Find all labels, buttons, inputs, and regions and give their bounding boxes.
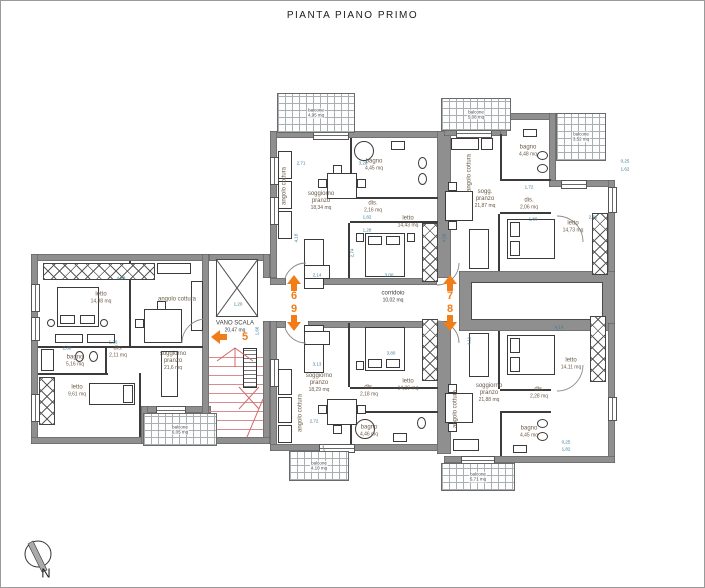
bidet <box>418 173 427 185</box>
room-area: 2,28 mq <box>530 394 548 400</box>
entrance-number-8: 8 <box>447 303 453 315</box>
room-label: soggiorno pranzo18,29 mq <box>306 373 332 393</box>
pillow <box>368 359 382 368</box>
pillow <box>386 359 400 368</box>
room-name: bagno <box>360 424 378 431</box>
room-name: letto <box>398 378 419 385</box>
dimension-label: 0,25 <box>621 159 630 164</box>
partition <box>500 134 502 181</box>
room-area: 2,16 mq <box>364 208 382 214</box>
room-label: letto14,43 mq <box>398 215 419 228</box>
balcony: balcone 4,95 mq <box>277 93 355 133</box>
balcony-label: balcone 6,05 mq <box>171 424 189 435</box>
chair <box>357 405 366 414</box>
wardrobe-hatch <box>39 377 55 425</box>
room-area: 2,11 mq <box>109 353 127 359</box>
room-area: 21,6 mq <box>160 365 186 371</box>
partition <box>139 373 141 437</box>
room-label: letto14,11 mq <box>561 357 581 370</box>
dimension-label: 2,74 <box>350 249 355 258</box>
compass-circle <box>25 541 51 567</box>
dining-table <box>144 309 182 343</box>
sofa <box>469 229 489 269</box>
room-label: dis.2,16 mq <box>364 200 382 213</box>
room-area: 18,34 mq <box>308 205 334 211</box>
room-name: soggiorno pranzo <box>160 351 186 365</box>
room-name: angolo cottura <box>466 154 473 192</box>
partition <box>348 323 350 387</box>
entrance-arrow-7 <box>443 275 457 291</box>
dining-table <box>327 399 357 425</box>
pillow <box>510 338 520 353</box>
sofa <box>469 333 489 377</box>
room-label: bagno4,45 mq <box>365 158 383 171</box>
elevator <box>216 259 258 317</box>
compass-north-label: N <box>41 566 50 581</box>
room-label: bagno4,46 mq <box>360 424 378 437</box>
room-area: 2,06 mq <box>520 205 538 211</box>
room-name: letto <box>91 291 112 298</box>
chair <box>333 425 342 434</box>
balcony-label: balcone 5,71 mq <box>469 472 487 483</box>
room-name: angolo cottura <box>452 390 459 428</box>
room-label: letto14,73 mq <box>563 220 584 233</box>
room-name: letto <box>561 357 581 364</box>
chair <box>448 221 457 230</box>
partition <box>38 373 108 375</box>
chair <box>333 165 342 174</box>
dimension-label: 1,20 <box>234 302 243 307</box>
wall <box>608 323 615 463</box>
room-label: bagno4,45 mq <box>520 425 538 438</box>
toilet <box>418 157 427 169</box>
room-name: dis. <box>360 384 378 391</box>
dimension-label: 0,25 <box>562 440 571 445</box>
kitchen-counter <box>278 397 292 423</box>
partition <box>500 212 551 214</box>
room-name: letto <box>68 384 86 391</box>
toilet <box>537 151 548 160</box>
dimension-label: 2,14 <box>313 273 322 278</box>
sink <box>513 445 527 453</box>
bidet <box>537 432 548 441</box>
floor-plan-canvas: PIANTA PIANO PRIMO <box>0 0 705 588</box>
dimension-label: 1,26 <box>109 340 118 345</box>
wardrobe-hatch <box>590 316 606 382</box>
room-name: dis. <box>364 200 382 207</box>
entrance-number-6: 6 <box>291 290 297 302</box>
dimension-label: 3,00 <box>385 273 394 278</box>
partition <box>498 331 500 389</box>
dimension-label: 1,62 <box>621 167 630 172</box>
room-name: angolo cottura <box>158 296 196 303</box>
room-label: bagno4,48 mq <box>519 144 537 157</box>
room-label: soggiorno pranzo21,6 mq <box>160 351 186 371</box>
bidet <box>537 164 548 173</box>
partition <box>350 197 438 199</box>
kitchen-counter <box>481 138 493 150</box>
wardrobe-hatch <box>422 223 438 282</box>
dimension-label: 4,18 <box>294 234 299 243</box>
kitchen-counter <box>278 369 292 395</box>
room-label: angolo cottura <box>452 390 459 428</box>
room-label: letto14,29 mq <box>398 378 419 391</box>
room-name: letto <box>563 220 584 227</box>
dining-table <box>445 191 473 221</box>
room-area: 18,29 mq <box>306 387 332 393</box>
desk <box>55 334 83 343</box>
chair <box>318 179 327 188</box>
dimension-label: 3,28 <box>359 161 368 166</box>
room-label: dis.2,11 mq <box>109 345 127 358</box>
dimension-label: 4,28 <box>117 276 126 281</box>
room-area: 21,88 mq <box>476 397 502 403</box>
dimension-label: 1,66 <box>255 327 260 336</box>
dimension-label: 2,31 <box>589 215 598 220</box>
room-name: letto <box>398 215 419 222</box>
room-area: 10,02 mq <box>381 298 404 304</box>
pillow <box>386 236 400 245</box>
room-label: soggiorno pranzo21,88 mq <box>476 383 502 403</box>
room-name: dis. <box>520 197 538 204</box>
room-name: soggiorno pranzo <box>476 383 502 397</box>
room-area: 4,45 mq <box>365 166 383 172</box>
wardrobe-hatch <box>592 213 608 275</box>
room-label: letto9,61 mq <box>68 384 86 397</box>
room-area: 4,48 mq <box>519 152 537 158</box>
wall <box>549 113 556 187</box>
room-label: angolo cottura <box>281 167 288 205</box>
kitchen-counter <box>157 263 191 274</box>
nightstand <box>356 233 364 242</box>
room-label: angolo cottura <box>158 296 196 303</box>
room-label: letto14,38 mq <box>91 291 112 304</box>
room-area: 14,73 mq <box>563 228 584 234</box>
entrance-arrow-8 <box>443 315 457 331</box>
dimension-label: 3,80 <box>387 351 396 356</box>
dimension-label: 1,82 <box>562 447 571 452</box>
wall <box>308 278 437 285</box>
partition <box>500 411 551 413</box>
room-area: 2,18 mq <box>360 392 378 398</box>
room-area: 9,61 mq <box>68 392 86 398</box>
room-area: 14,38 mq <box>91 299 112 305</box>
dimension-label: 2,88 <box>63 346 72 351</box>
room-label: angolo cottura <box>297 394 304 432</box>
partition <box>105 346 107 375</box>
pillow <box>60 315 75 324</box>
sofa-chaise <box>304 331 330 345</box>
room-label: sogg. pranzo21,87 mq <box>475 189 496 209</box>
room-area: 14,43 mq <box>398 223 419 229</box>
entrance-number-5: 5 <box>242 331 248 343</box>
balcony: balcone 3,52 mq <box>556 113 606 161</box>
room-name: sogg. pranzo <box>475 189 496 203</box>
entrance-number-9: 9 <box>291 303 297 315</box>
wall <box>31 254 209 261</box>
room-name: bagno <box>365 158 383 165</box>
nightstand <box>47 319 55 327</box>
stair-label-box <box>243 348 257 388</box>
window <box>608 187 617 213</box>
room-area: 14,29 mq <box>398 386 419 392</box>
room-name: VANO SCALA <box>216 320 254 327</box>
nightstand <box>356 361 364 370</box>
kitchen-counter <box>278 211 292 239</box>
room-area: 5,16 mq <box>66 362 84 368</box>
room-label: dis.2,06 mq <box>520 197 538 210</box>
sink <box>393 433 407 442</box>
wall <box>263 254 270 278</box>
window <box>608 397 617 421</box>
room-name: angolo cottura <box>281 167 288 205</box>
chair <box>318 405 327 414</box>
window <box>31 317 40 341</box>
wall-recess <box>471 282 603 320</box>
partition <box>498 214 500 271</box>
balcony: balcone 6,05 mq <box>143 413 217 446</box>
room-name: dis. <box>530 386 548 393</box>
dimension-label: 2,71 <box>297 161 306 166</box>
nightstand <box>100 319 108 327</box>
partition <box>500 413 502 456</box>
chair <box>135 319 144 328</box>
chair <box>448 182 457 191</box>
bathtub <box>41 349 54 371</box>
dimension-label: 3,13 <box>313 362 322 367</box>
room-label: angolo cottura <box>466 154 473 192</box>
balcony: balcone 5,08 mq <box>441 98 511 131</box>
room-name: bagno <box>520 425 538 432</box>
room-label: corridoio10,02 mq <box>381 290 404 303</box>
entrance-arrow-6 <box>287 275 301 291</box>
room-name: angolo cottura <box>297 394 304 432</box>
kitchen-counter <box>278 425 292 443</box>
balcony: balcone 5,71 mq <box>441 463 515 491</box>
drawing-title: PIANTA PIANO PRIMO <box>1 10 704 21</box>
wardrobe-hatch <box>422 319 438 381</box>
partition <box>500 179 551 181</box>
toilet <box>537 419 548 428</box>
window <box>561 180 587 189</box>
kitchen-counter <box>191 281 203 331</box>
entrance-arrow-5 <box>211 330 227 344</box>
room-name: soggiorno pranzo <box>306 373 332 387</box>
chair <box>357 179 366 188</box>
pillow <box>123 385 133 403</box>
pillow <box>510 222 520 237</box>
pillow <box>80 315 95 324</box>
entrance-number-7: 7 <box>447 290 453 302</box>
dimension-label: 2,72 <box>310 419 319 424</box>
wall <box>270 278 286 285</box>
wardrobe-hatch <box>43 263 155 280</box>
pillow <box>510 357 520 372</box>
room-name: bagno <box>66 354 84 361</box>
balcony: balcone 4,10 mq <box>289 451 349 481</box>
balcony-label: balcone 4,10 mq <box>310 461 328 472</box>
room-label: dis.2,18 mq <box>360 384 378 397</box>
wall <box>270 444 444 451</box>
pillow <box>368 236 382 245</box>
dimension-label: 4,14 <box>555 325 564 330</box>
dimension-label: 1,28 <box>363 228 372 233</box>
room-label: dis.2,28 mq <box>530 386 548 399</box>
dimension-label: 1,82 <box>363 215 372 220</box>
room-area: 4,46 mq <box>360 432 378 438</box>
room-name: dis. <box>109 345 127 352</box>
sink <box>523 129 537 137</box>
room-label: soggiorno pranzo18,34 mq <box>308 191 334 211</box>
room-name: bagno <box>519 144 537 151</box>
room-area: 21,87 mq <box>475 203 496 209</box>
room-area: 14,11 mq <box>561 365 581 371</box>
room-name: soggiorno pranzo <box>308 191 334 205</box>
nightstand <box>407 233 415 242</box>
dimension-label: 1,72 <box>525 185 534 190</box>
toilet <box>89 351 98 362</box>
dimension-label: 4,58 <box>442 234 447 243</box>
dimension-label: 1,80 <box>529 217 538 222</box>
balcony-label: balcone 4,95 mq <box>307 108 325 119</box>
room-area: 4,45 mq <box>520 433 538 439</box>
kitchen-counter <box>453 439 479 451</box>
sofa <box>304 239 324 289</box>
toilet <box>417 417 426 429</box>
kitchen-counter <box>451 138 479 150</box>
balcony-label: balcone 5,08 mq <box>467 109 485 120</box>
sink <box>391 141 405 150</box>
pillow <box>510 241 520 256</box>
window <box>31 284 40 312</box>
room-name: corridoio <box>381 290 404 297</box>
wall <box>31 437 148 444</box>
room-label: bagno5,16 mq <box>66 354 84 367</box>
dimension-label: 4,11 <box>467 337 472 345</box>
entrance-arrow-9 <box>287 315 301 331</box>
wall <box>263 321 270 444</box>
balcony-label: balcone 3,52 mq <box>572 132 590 143</box>
